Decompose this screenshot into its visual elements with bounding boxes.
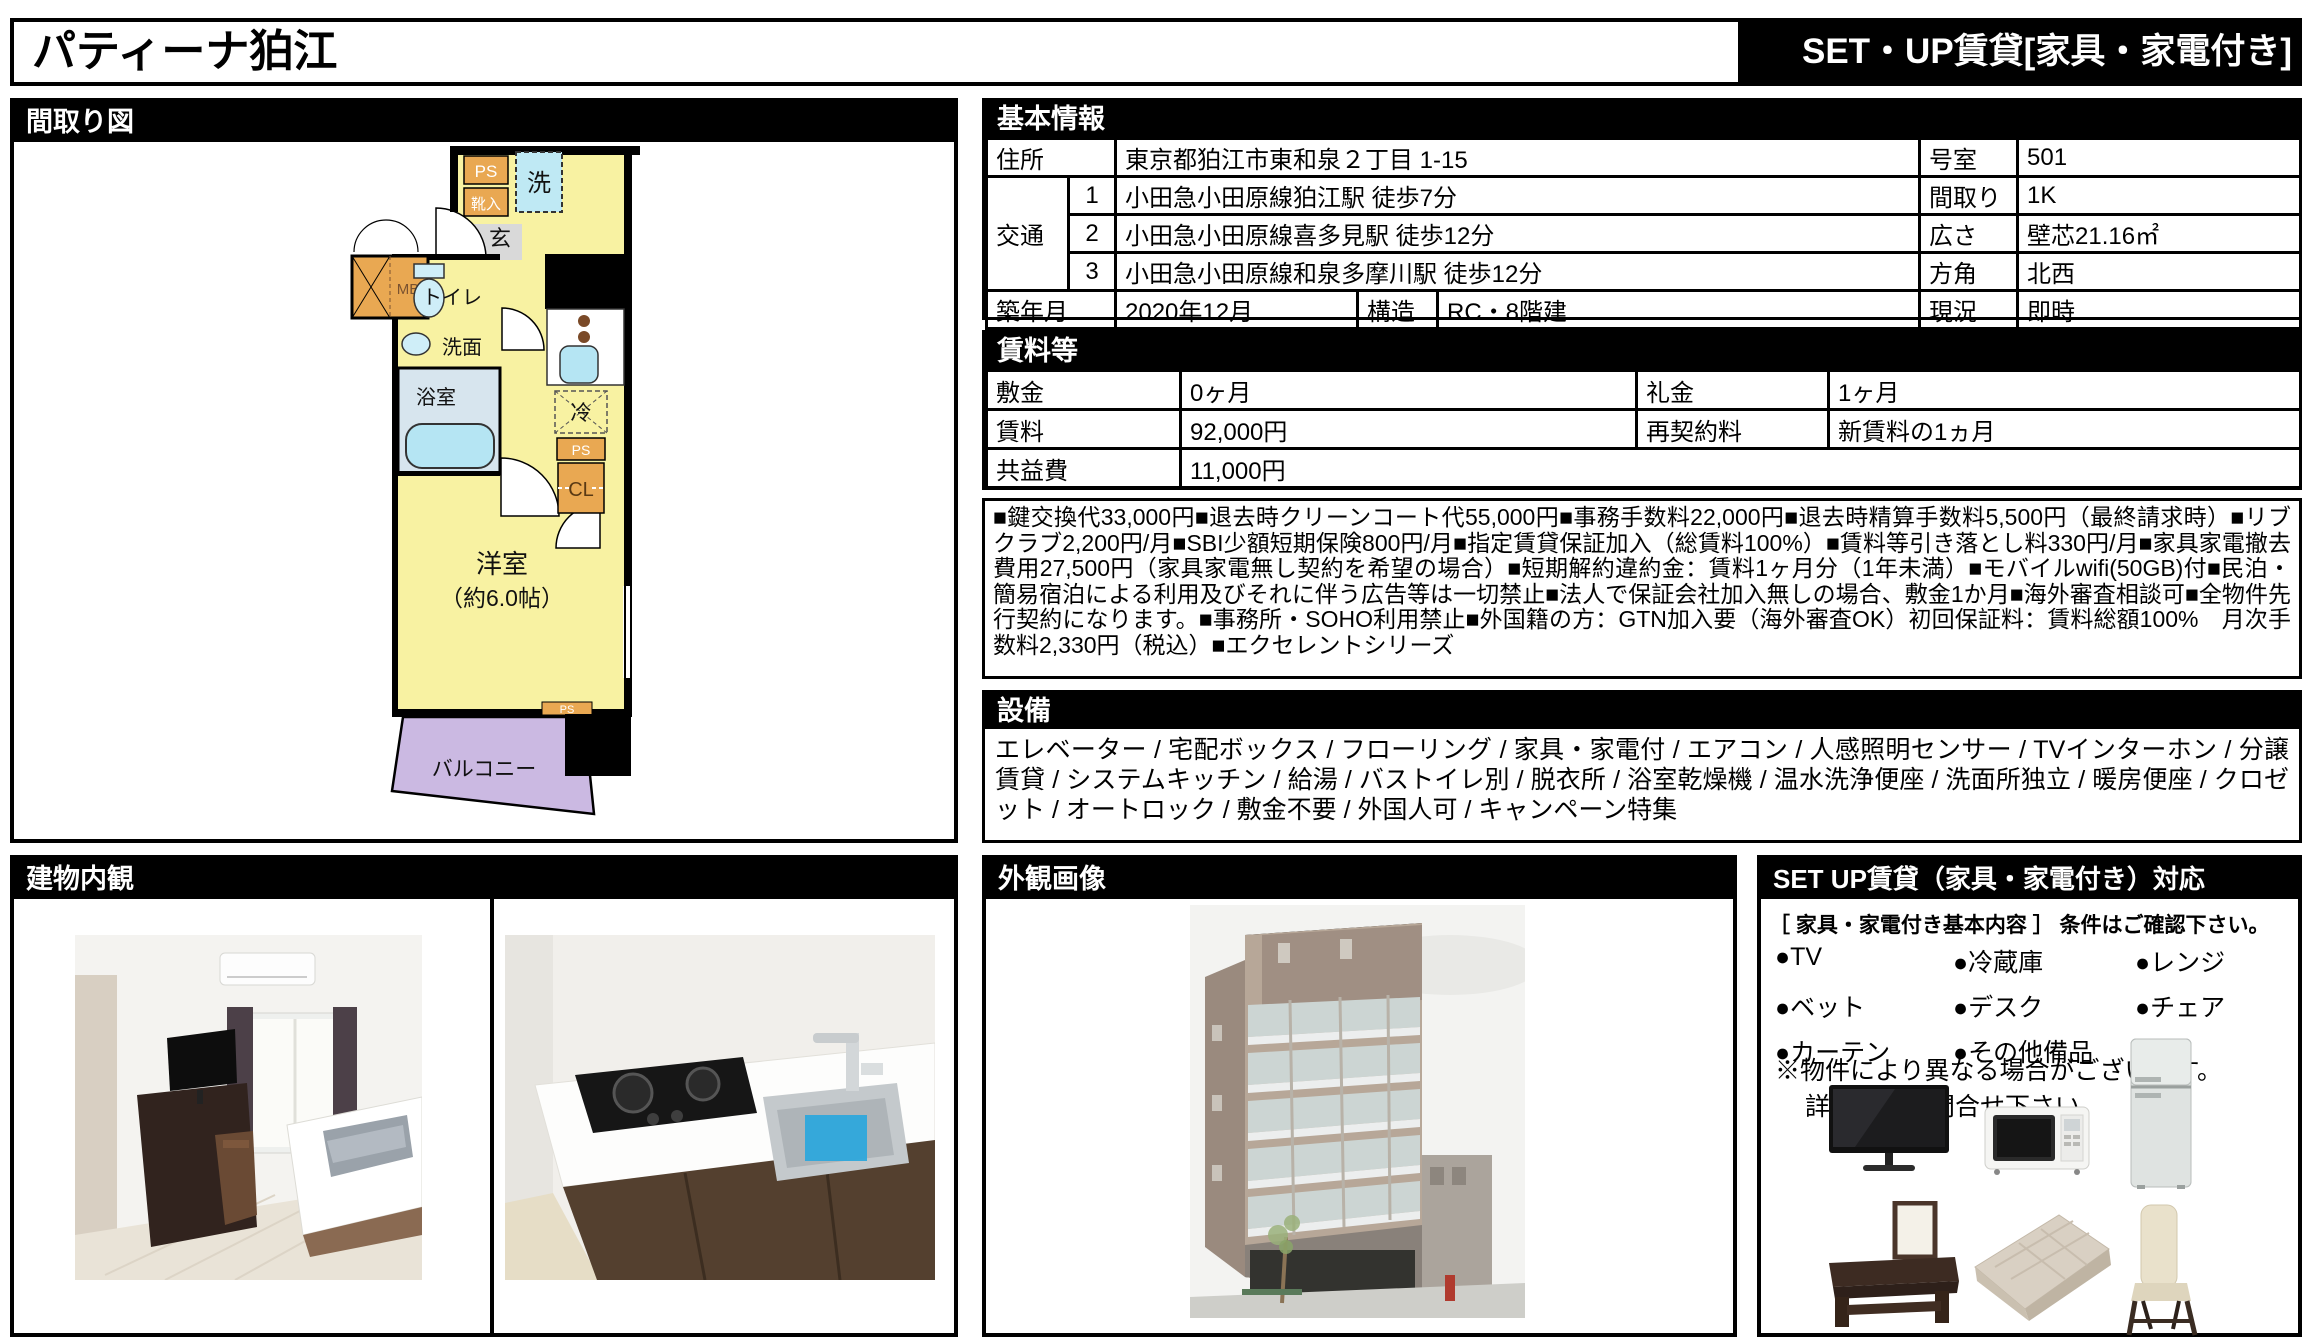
- tv-image: [1825, 1081, 1953, 1177]
- facilities-section: 設備 エレベーター / 宅配ボックス / フローリング / 家具・家電付 / エ…: [982, 690, 2302, 843]
- fridge-space-label: 冷: [571, 402, 592, 425]
- renewal-value: 新賃料の1ヵ月: [1829, 410, 2301, 449]
- room-size-label: （約6.0帖）: [440, 585, 564, 611]
- floorplan-section: 間取り図 PS 靴入: [10, 98, 958, 843]
- microwave-image: [1983, 1103, 2091, 1177]
- renewal-label: 再契約料: [1637, 410, 1829, 449]
- building-photo: [1190, 905, 1525, 1318]
- transit-1-text: 小田急小田原線狛江駅 徒歩7分: [1116, 177, 1920, 215]
- chair-image: [2121, 1203, 2201, 1339]
- balcony-label: バルコニー: [432, 758, 537, 781]
- direction-label: 方角: [1920, 253, 2018, 291]
- basic-info-title: 基本情報: [997, 104, 1105, 134]
- washstand-label: 洗面: [442, 336, 482, 359]
- exterior-title: 外観画像: [998, 864, 1106, 894]
- area-label: 広さ: [1920, 215, 2018, 253]
- setup-rental-badge: SET・UP賃貸[家具・家電付き]: [1742, 18, 2302, 86]
- balcony-wall-block: [565, 714, 631, 776]
- ps-top-label: PS: [475, 162, 498, 181]
- ps-mid-label: PS: [572, 442, 591, 458]
- layout-label: 間取り: [1920, 177, 2018, 215]
- bath-label: 浴室: [416, 386, 456, 409]
- floorplan-section-title: 間取り図: [26, 107, 134, 137]
- structure-value: RC・8階建: [1438, 291, 1920, 329]
- transit-2-text: 小田急小田原線喜多見駅 徒歩12分: [1116, 215, 1920, 253]
- facilities-header: 設備: [985, 693, 2299, 729]
- mb-door-arc-right: [386, 220, 418, 252]
- setup-section: SET UP賃貸（家具・家電付き）対応 ［ 家具・家電付き基本内容 ］ 条件はご…: [1757, 855, 2302, 1337]
- floorplan-section-header: 間取り図: [14, 102, 954, 142]
- stove-burner-2: [578, 331, 590, 343]
- washstand-basin: [402, 333, 430, 355]
- basic-info-table: 住所 東京都狛江市東和泉２丁目 1-15 号室 501 交通 1 小田急小田原線…: [985, 137, 2302, 330]
- desk-image: [1823, 1201, 1961, 1329]
- deposit-value: 0ヶ月: [1181, 371, 1637, 410]
- status-value: 即時: [2018, 291, 2301, 329]
- exterior-header: 外観画像: [986, 859, 1733, 899]
- facilities-text: エレベーター / 宅配ボックス / フローリング / 家具・家電付 / エアコン…: [985, 729, 2299, 831]
- wall-bath-bottom: [392, 471, 500, 476]
- transit-3-no: 3: [1069, 253, 1116, 291]
- property-title-box: パティーナ狛江: [10, 18, 1742, 86]
- setup-intro: ［ 家具・家電付き基本内容 ］ 条件はご確認下さい。: [1769, 909, 2299, 939]
- property-title: パティーナ狛江: [32, 27, 337, 76]
- interior-divider: [490, 899, 494, 1333]
- structure-label: 構造: [1358, 291, 1438, 329]
- maintenance-value: 11,000円: [1181, 449, 2301, 488]
- exterior-section: 外観画像: [982, 855, 1737, 1337]
- toilet-tank: [414, 264, 444, 278]
- room-no-value: 501: [2018, 139, 2301, 177]
- kitchen-wall-block: [545, 254, 632, 309]
- kitchen-photo: [505, 935, 935, 1280]
- interior-header: 建物内観: [14, 859, 954, 899]
- toilet-label: トイレ: [422, 287, 482, 309]
- rent-table: 敷金 0ヶ月 礼金 1ヶ月 賃料 92,000円 再契約料 新賃料の1ヵ月 共益…: [985, 369, 2302, 489]
- setup-title: SET UP賃貸（家具・家電付き）対応: [1773, 864, 2205, 894]
- bathtub: [406, 424, 494, 468]
- transit-1-no: 1: [1069, 177, 1116, 215]
- notes-box: ■鍵交換代33,000円■退去時クリーンコート代55,000円■事務手数料22,…: [982, 498, 2302, 679]
- key-money-value: 1ヶ月: [1829, 371, 2301, 410]
- kitchen-sink: [560, 346, 598, 383]
- status-label: 現況: [1920, 291, 2018, 329]
- address-label: 住所: [987, 139, 1116, 177]
- setup-item-range: ●レンジ: [2135, 943, 2295, 979]
- interior-section: 建物内観: [10, 855, 958, 1337]
- built-label: 築年月: [987, 291, 1116, 329]
- layout-value: 1K: [2018, 177, 2301, 215]
- key-money-label: 礼金: [1637, 371, 1829, 410]
- rent-header: 賃料等: [985, 333, 2299, 369]
- floorplan-drawing: PS 靴入 洗 玄 MB トイレ 洗面 浴室: [344, 146, 644, 838]
- wall-upper-left: [450, 146, 458, 212]
- entrance-label: 玄: [489, 226, 511, 251]
- notes-text: ■鍵交換代33,000円■退去時クリーンコート代55,000円■事務手数料22,…: [993, 504, 2291, 658]
- mb-door-arc-left: [354, 220, 386, 252]
- deposit-label: 敷金: [987, 371, 1181, 410]
- room-no-label: 号室: [1920, 139, 2018, 177]
- setup-header: SET UP賃貸（家具・家電付き）対応: [1761, 859, 2298, 899]
- rent-value: 92,000円: [1181, 410, 1637, 449]
- closet-label: CL: [568, 479, 594, 501]
- fridge-image: [2127, 1037, 2195, 1189]
- basic-info-header: 基本情報: [985, 101, 2299, 137]
- transit-3-text: 小田急小田原線和泉多摩川駅 徒歩12分: [1116, 253, 1920, 291]
- setup-rental-badge-text: SET・UP賃貸[家具・家電付き]: [1802, 32, 2292, 71]
- washer-label: 洗: [527, 170, 551, 197]
- basic-info-section: 基本情報 住所 東京都狛江市東和泉２丁目 1-15 号室 501 交通 1 小田…: [982, 98, 2302, 320]
- wall-left: [392, 254, 398, 716]
- maintenance-label: 共益費: [987, 449, 1181, 488]
- setup-item-fridge: ●冷蔵庫: [1953, 943, 2135, 979]
- setup-item-tv: ●TV: [1775, 943, 1953, 979]
- interior-title: 建物内観: [26, 864, 134, 894]
- setup-item-desk: ●デスク: [1953, 988, 2135, 1024]
- mattress-image: [1967, 1209, 2115, 1323]
- shoe-box-label: 靴入: [471, 196, 501, 213]
- room-label: 洋室: [476, 549, 528, 579]
- facilities-title: 設備: [997, 696, 1051, 726]
- setup-item-bed: ●ベット: [1775, 988, 1953, 1024]
- built-value: 2020年12月: [1116, 291, 1358, 329]
- transit-2-no: 2: [1069, 215, 1116, 253]
- setup-item-chair: ●チェア: [2135, 988, 2295, 1024]
- address-value: 東京都狛江市東和泉２丁目 1-15: [1116, 139, 1920, 177]
- stove-burner-1: [578, 315, 590, 327]
- rent-section: 賃料等 敷金 0ヶ月 礼金 1ヶ月 賃料 92,000円 再契約料 新賃料の1ヵ…: [982, 330, 2302, 490]
- rent-title: 賃料等: [997, 336, 1078, 366]
- area-value: 壁芯21.16㎡: [2018, 215, 2301, 253]
- bedroom-photo: [75, 935, 422, 1280]
- rent-label: 賃料: [987, 410, 1181, 449]
- direction-value: 北西: [2018, 253, 2301, 291]
- transit-label: 交通: [987, 177, 1069, 291]
